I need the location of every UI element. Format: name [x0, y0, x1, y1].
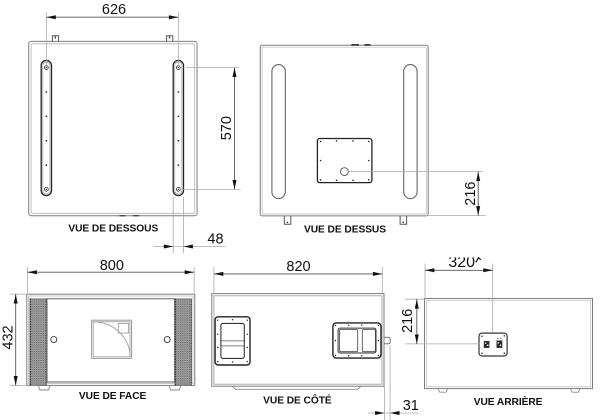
svg-text:31: 31: [403, 398, 419, 414]
svg-text:VUE DE DESSUS: VUE DE DESSUS: [304, 225, 386, 236]
svg-text:VUE DE CÔTÉ: VUE DE CÔTÉ: [263, 394, 332, 407]
svg-text:216: 216: [463, 181, 479, 205]
svg-text:626: 626: [102, 2, 126, 18]
svg-text:570: 570: [219, 116, 235, 140]
svg-text:800: 800: [100, 258, 124, 274]
svg-text:VUE ARRIÈRE: VUE ARRIÈRE: [474, 395, 543, 408]
svg-text:48: 48: [207, 232, 223, 248]
svg-text:432: 432: [0, 325, 16, 349]
svg-text:216: 216: [400, 309, 416, 333]
svg-text:820: 820: [286, 259, 310, 275]
svg-text:VUE DE DESSOUS: VUE DE DESSOUS: [68, 224, 158, 235]
svg-text:VUE DE FACE: VUE DE FACE: [79, 391, 147, 402]
